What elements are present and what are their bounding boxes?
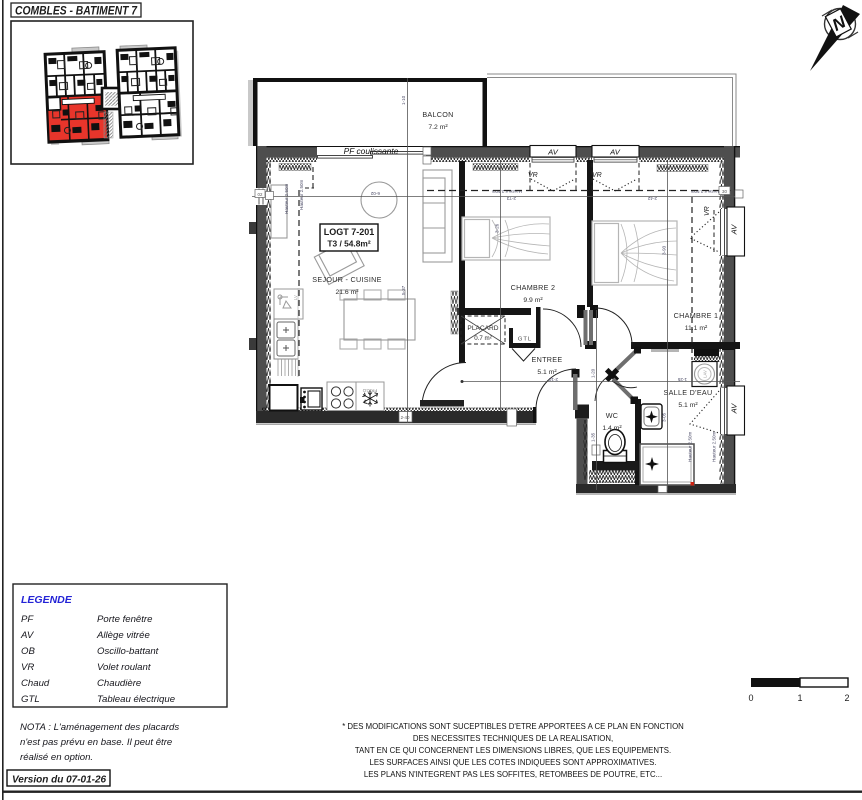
- svg-text:2: 2: [844, 693, 849, 703]
- svg-text:11.1 m²: 11.1 m²: [685, 325, 708, 332]
- svg-text:7.2 m²: 7.2 m²: [428, 124, 448, 131]
- svg-text:CHAMBRE 1: CHAMBRE 1: [674, 311, 719, 320]
- svg-text:Chaudière: Chaudière: [97, 678, 141, 689]
- svg-text:LV: LV: [293, 295, 298, 300]
- svg-text:SEJOUR - CUISINE: SEJOUR - CUISINE: [312, 275, 382, 284]
- svg-text:5.1 m²: 5.1 m²: [537, 369, 557, 376]
- svg-text:Hauteur 2.50m: Hauteur 2.50m: [284, 183, 289, 214]
- svg-text:0.7 m²: 0.7 m²: [474, 335, 492, 342]
- svg-text:DES NECESSITES TECHNIQUES DE L: DES NECESSITES TECHNIQUES DE LA REALISAT…: [413, 734, 613, 743]
- svg-text:5.1 m²: 5.1 m²: [678, 402, 698, 409]
- svg-text:30: 30: [722, 189, 727, 194]
- svg-text:0: 0: [748, 693, 753, 703]
- svg-text:Allège vitrée: Allège vitrée: [96, 630, 150, 641]
- svg-text:Hauteur 2.50m: Hauteur 2.50m: [688, 431, 693, 462]
- svg-text:SALLE D'EAU: SALLE D'EAU: [663, 388, 712, 397]
- svg-text:GTL: GTL: [518, 337, 532, 343]
- svg-text:PF coulissante: PF coulissante: [344, 146, 399, 156]
- svg-text:VR: VR: [592, 172, 602, 179]
- svg-text:Chaud: Chaud: [21, 678, 50, 689]
- svg-text:Porte fenêtre: Porte fenêtre: [97, 614, 152, 625]
- svg-text:OB: OB: [21, 646, 35, 657]
- svg-text:WC: WC: [606, 411, 619, 420]
- svg-text:21.6 m²: 21.6 m²: [335, 289, 359, 296]
- svg-text:9.9 m²: 9.9 m²: [523, 297, 543, 304]
- svg-text:Volet roulant: Volet roulant: [97, 662, 151, 673]
- svg-text:AV: AV: [547, 148, 559, 157]
- svg-text:TANT EN CE QUI CONCERNENT LES: TANT EN CE QUI CONCERNENT LES DIMENSIONS…: [355, 746, 671, 755]
- svg-text:1-35: 1-35: [591, 432, 596, 442]
- svg-text:Tableau électrique: Tableau électrique: [97, 694, 175, 705]
- svg-text:Hauteur 2.50m: Hauteur 2.50m: [299, 179, 304, 210]
- svg-text:* DES MODIFICATIONS SONT SUCEP: * DES MODIFICATIONS SONT SUCEPTIBLES D'E…: [342, 722, 684, 731]
- svg-text:PF: PF: [21, 614, 34, 625]
- svg-text:6-02: 6-02: [370, 191, 380, 196]
- svg-text:NOTA : L'aménagement des placa: NOTA : L'aménagement des placards: [20, 722, 179, 733]
- svg-text:CHAMBRE 2: CHAMBRE 2: [511, 283, 556, 292]
- svg-text:3-26: 3-26: [495, 223, 500, 233]
- svg-text:BALCON: BALCON: [422, 110, 453, 119]
- svg-text:3-05: 3-05: [662, 412, 667, 422]
- svg-text:3-93: 3-93: [662, 245, 667, 255]
- svg-text:ENTREE: ENTREE: [532, 355, 563, 364]
- svg-text:1-25: 1-25: [677, 377, 687, 382]
- svg-text:AV: AV: [20, 630, 35, 641]
- svg-text:T3 / 54.8m²: T3 / 54.8m²: [327, 239, 371, 249]
- svg-text:LES PLANS N'INTEGRENT PAS LES: LES PLANS N'INTEGRENT PAS LES SOFFITES, …: [364, 770, 662, 779]
- svg-text:Hauteur 2.50m: Hauteur 2.50m: [690, 189, 721, 194]
- svg-text:GTL: GTL: [21, 694, 40, 705]
- svg-text:LAV: LAV: [703, 370, 708, 378]
- svg-text:5-37: 5-37: [401, 285, 406, 295]
- svg-text:2-42: 2-42: [647, 196, 657, 201]
- svg-text:2-40: 2-40: [401, 415, 410, 420]
- svg-text:n'est pas prévu en base. Il pe: n'est pas prévu en base. Il peut être: [20, 737, 172, 748]
- svg-text:1-10: 1-10: [401, 95, 406, 105]
- svg-text:LEGENDE: LEGENDE: [21, 594, 73, 606]
- svg-text:1.4 m²: 1.4 m²: [602, 425, 622, 432]
- svg-text:1: 1: [797, 693, 802, 703]
- svg-text:LOGT 7-201: LOGT 7-201: [324, 227, 375, 237]
- svg-text:2-10: 2-10: [548, 377, 558, 382]
- svg-text:PLACARD: PLACARD: [467, 325, 498, 332]
- svg-text:Version du 07-01-26: Version du 07-01-26: [12, 775, 107, 786]
- svg-text:LES SURFACES AINSI QUE LES COT: LES SURFACES AINSI QUE LES COTES INDIQUE…: [370, 758, 657, 767]
- svg-text:Hauteur 2.50m: Hauteur 2.50m: [491, 189, 522, 194]
- svg-text:VR: VR: [528, 172, 538, 179]
- svg-text:Oscillo-battant: Oscillo-battant: [97, 646, 159, 657]
- svg-text:AV: AV: [609, 148, 621, 157]
- svg-text:COMBLES - BATIMENT 7: COMBLES - BATIMENT 7: [15, 6, 138, 18]
- svg-text:réalisé en option.: réalisé en option.: [20, 752, 93, 763]
- svg-text:02: 02: [258, 192, 263, 197]
- svg-text:Hauteur 2.50m: Hauteur 2.50m: [712, 431, 717, 462]
- svg-text:2-73: 2-73: [506, 196, 516, 201]
- svg-text:1-20: 1-20: [591, 368, 596, 378]
- svg-text:AV: AV: [730, 403, 739, 415]
- svg-text:AV: AV: [730, 224, 739, 236]
- svg-text:VR: VR: [21, 662, 34, 673]
- svg-text:VR: VR: [704, 206, 711, 216]
